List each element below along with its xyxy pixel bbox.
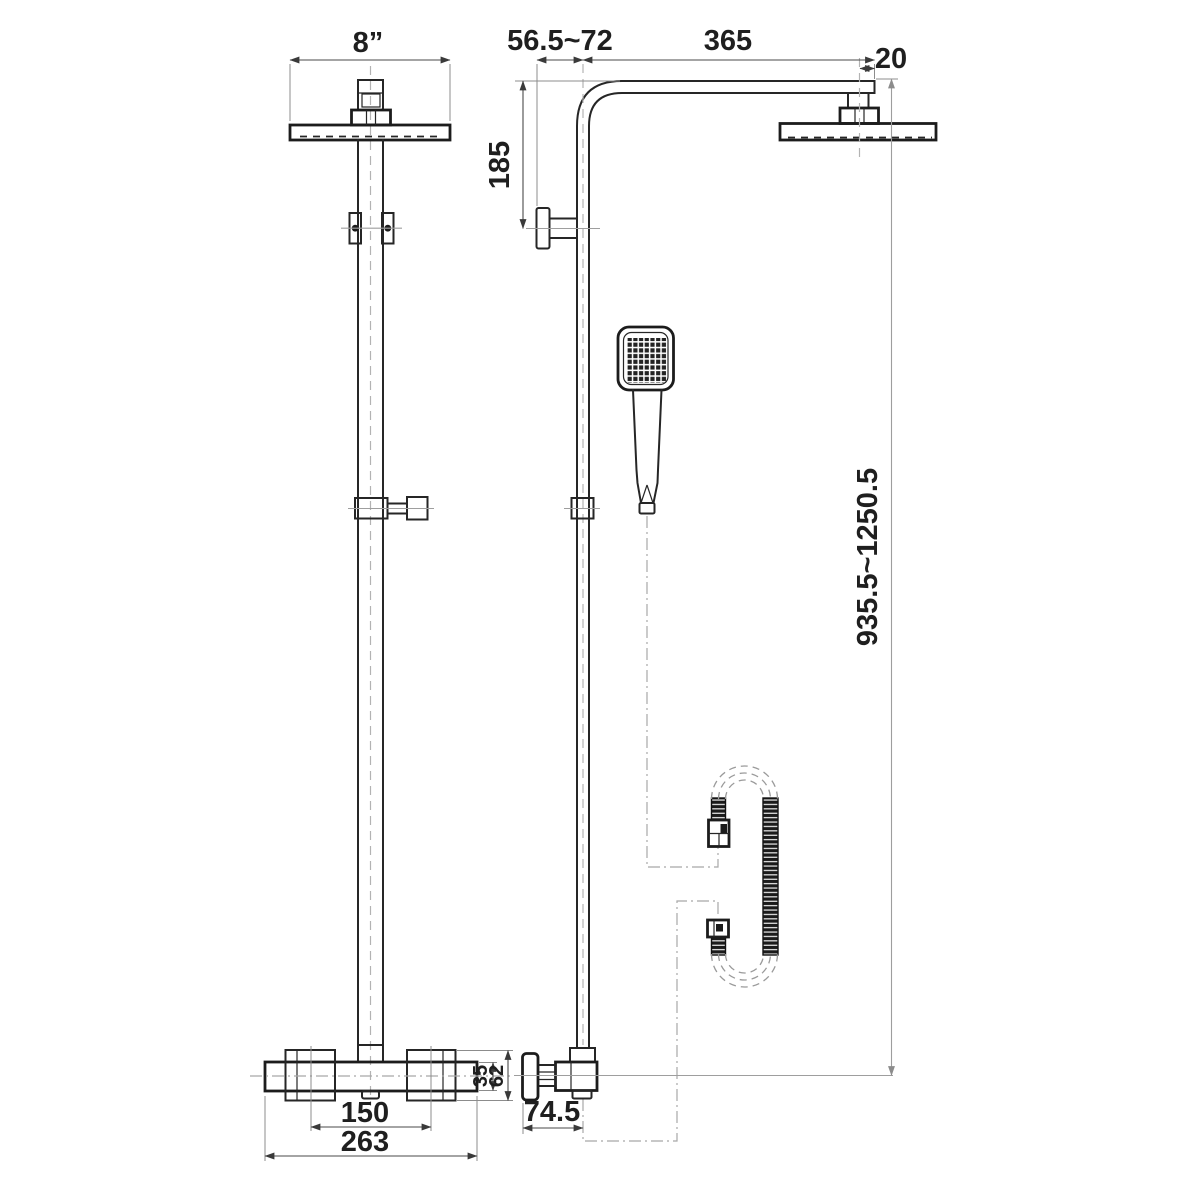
hose-upper-connector-insert [721, 824, 728, 833]
hose-top-arc-outer [712, 766, 778, 799]
front-dimensions: 8” 150 263 35 62 [265, 27, 513, 1161]
hose-bottom-arc-outer [712, 954, 778, 987]
dim-label-overhead-width: 8” [353, 27, 384, 59]
hose-connector-lower [708, 920, 729, 937]
front-slider [348, 497, 434, 520]
dim-label-handle-centres: 150 [341, 1097, 389, 1129]
dim-label-arm-length: 365 [704, 25, 752, 57]
front-left-handle [286, 1050, 336, 1101]
dim-label-head-offset: 20 [875, 43, 907, 75]
side-valve-body [556, 1062, 598, 1091]
side-pole-collar [570, 1048, 595, 1062]
side-riser-outer-edge [577, 81, 875, 1048]
dim-label-riser-height: 935.5~1250.5 [852, 468, 884, 646]
hose-bottom-arc-inner [726, 954, 764, 973]
handheld-shower [618, 327, 674, 514]
hose-lower-connector-insert [716, 924, 723, 932]
shower-technical-drawing: 8” 150 263 35 62 [0, 0, 1200, 1200]
side-riser-inner-edge [589, 93, 875, 1048]
side-valve [514, 1048, 893, 1100]
dim-label-arm-drop: 185 [484, 141, 516, 189]
dim-label-wall-offset: 56.5~72 [507, 25, 613, 57]
hose-top-arc-inner [726, 780, 764, 799]
shower-hose [708, 766, 779, 987]
handset-nozzle-grid [627, 338, 667, 383]
leader-valve-to-hose [583, 901, 718, 1141]
dim-label-valve-width: 263 [341, 1126, 389, 1158]
handset-outlet-nub [640, 503, 655, 514]
dim-label-valve-overall-height: 62 [486, 1065, 508, 1087]
hose-rib-upper [712, 798, 726, 820]
hose-rib-long [763, 798, 778, 955]
side-head-connector-neck [848, 93, 869, 108]
handset-outlet-cone [641, 485, 653, 503]
dim-label-valve-depth: 74.5 [524, 1096, 580, 1128]
hose-connector-upper [709, 820, 730, 847]
side-dimensions: 56.5~72 365 20 185 935.5~1250.5 74.5 [484, 25, 907, 1134]
side-valve-handle-knob [523, 1054, 539, 1101]
drawing-canvas: 8” 150 263 35 62 [0, 0, 1200, 1200]
front-view [250, 66, 512, 1106]
hose-upper-connector-detail [709, 834, 730, 847]
front-wall-bracket [341, 213, 402, 244]
hose-rib-lower [712, 937, 726, 955]
side-overhead-shower [780, 58, 936, 162]
leader-handset-to-hose [647, 516, 718, 867]
